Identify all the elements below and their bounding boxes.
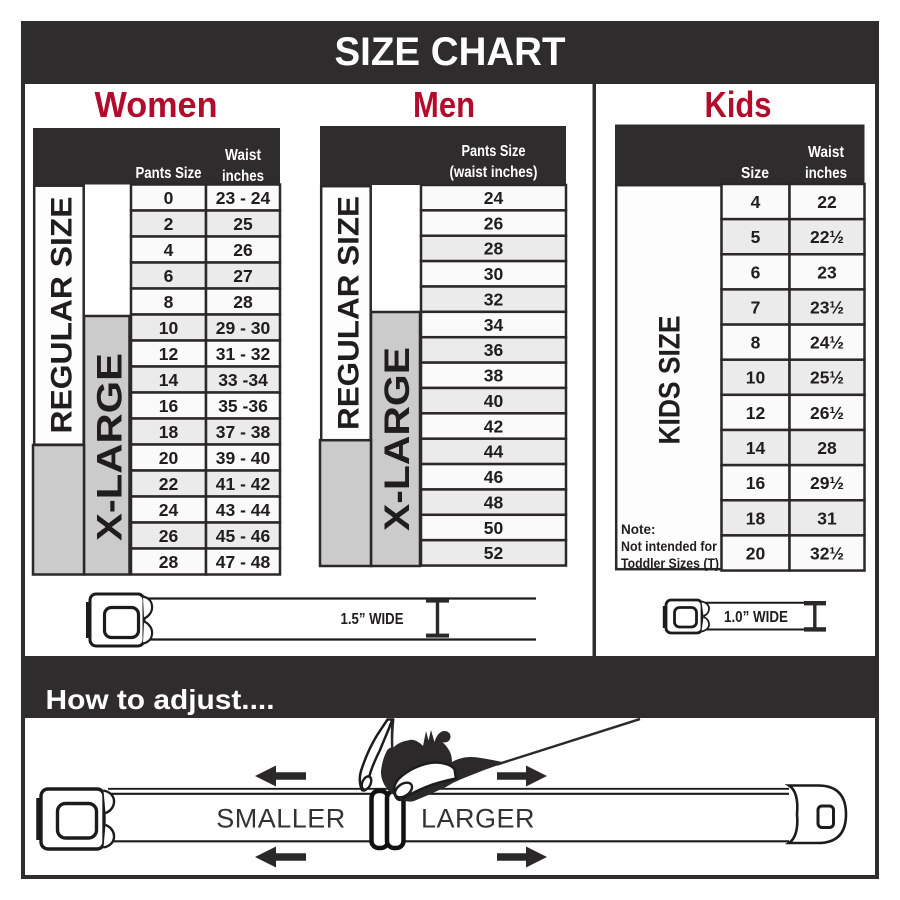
svg-text:28: 28 <box>484 239 504 259</box>
svg-text:39 - 40: 39 - 40 <box>216 448 271 468</box>
svg-text:REGULAR SIZE: REGULAR SIZE <box>333 196 366 430</box>
svg-text:4: 4 <box>164 240 174 260</box>
svg-text:28: 28 <box>233 292 253 312</box>
svg-text:35 -36: 35 -36 <box>218 396 268 416</box>
svg-text:20: 20 <box>746 543 766 563</box>
svg-text:How to adjust....: How to adjust.... <box>46 684 275 715</box>
svg-text:16: 16 <box>159 396 179 416</box>
svg-text:26: 26 <box>484 213 504 233</box>
svg-text:18: 18 <box>159 422 179 442</box>
svg-text:26: 26 <box>233 240 253 260</box>
svg-text:12: 12 <box>159 344 179 364</box>
svg-text:Not intended for: Not intended for <box>621 539 718 554</box>
svg-text:23: 23 <box>817 262 837 282</box>
svg-text:Pants Size: Pants Size <box>136 165 202 182</box>
svg-text:48: 48 <box>484 492 504 512</box>
svg-text:20: 20 <box>159 448 179 468</box>
svg-text:7: 7 <box>751 297 761 317</box>
svg-text:37 - 38: 37 - 38 <box>216 422 271 442</box>
svg-text:32: 32 <box>484 289 504 309</box>
svg-text:SMALLER: SMALLER <box>216 804 346 834</box>
svg-text:38: 38 <box>484 366 504 386</box>
svg-text:22: 22 <box>817 192 837 212</box>
svg-text:8: 8 <box>751 333 761 353</box>
svg-text:1.0” WIDE: 1.0” WIDE <box>724 609 788 626</box>
svg-text:52: 52 <box>484 543 504 563</box>
svg-text:28: 28 <box>159 552 179 572</box>
svg-text:Women: Women <box>95 84 218 125</box>
svg-text:28: 28 <box>817 438 837 458</box>
svg-text:X-LARGE: X-LARGE <box>378 347 417 531</box>
svg-text:inches: inches <box>805 165 847 182</box>
svg-text:14: 14 <box>159 370 179 390</box>
svg-text:KIDS SIZE: KIDS SIZE <box>654 316 687 445</box>
svg-text:10: 10 <box>746 368 766 388</box>
svg-text:Size: Size <box>741 165 769 182</box>
svg-text:26½: 26½ <box>810 403 844 423</box>
svg-text:Men: Men <box>413 84 475 125</box>
svg-text:26: 26 <box>159 526 179 546</box>
svg-text:Waist: Waist <box>808 144 845 161</box>
svg-text:18: 18 <box>746 508 766 528</box>
svg-text:Pants Size: Pants Size <box>462 143 526 160</box>
svg-text:Waist: Waist <box>225 147 262 164</box>
svg-text:X-LARGE: X-LARGE <box>91 353 130 541</box>
svg-text:34: 34 <box>484 315 504 335</box>
svg-text:6: 6 <box>164 266 174 286</box>
svg-text:43 - 44: 43 - 44 <box>216 500 271 520</box>
svg-text:REGULAR SIZE: REGULAR SIZE <box>46 197 79 434</box>
svg-text:29 - 30: 29 - 30 <box>216 318 271 338</box>
svg-text:1.5” WIDE: 1.5” WIDE <box>341 611 404 628</box>
svg-text:SIZE CHART: SIZE CHART <box>335 30 566 74</box>
svg-text:8: 8 <box>164 292 174 312</box>
svg-text:29½: 29½ <box>810 473 844 493</box>
svg-text:22½: 22½ <box>810 227 844 247</box>
svg-text:(waist inches): (waist inches) <box>450 164 538 181</box>
svg-text:27: 27 <box>233 266 252 286</box>
svg-text:24½: 24½ <box>810 333 844 353</box>
svg-text:4: 4 <box>751 192 761 212</box>
svg-text:0: 0 <box>164 188 174 208</box>
svg-text:42: 42 <box>484 416 504 436</box>
svg-text:24: 24 <box>484 188 504 208</box>
svg-text:45 - 46: 45 - 46 <box>216 526 271 546</box>
svg-text:10: 10 <box>159 318 179 338</box>
svg-text:40: 40 <box>484 391 504 411</box>
svg-text:Kids: Kids <box>705 84 772 125</box>
svg-text:33 -34: 33 -34 <box>218 370 268 390</box>
svg-text:41 - 42: 41 - 42 <box>216 474 271 494</box>
svg-text:44: 44 <box>484 442 504 462</box>
svg-text:inches: inches <box>222 168 264 185</box>
svg-text:46: 46 <box>484 467 504 487</box>
svg-text:24: 24 <box>159 500 179 520</box>
svg-text:25: 25 <box>233 214 253 234</box>
svg-text:6: 6 <box>751 262 761 282</box>
svg-text:14: 14 <box>746 438 766 458</box>
svg-text:12: 12 <box>746 403 766 423</box>
svg-text:23½: 23½ <box>810 297 844 317</box>
svg-text:50: 50 <box>484 518 504 538</box>
svg-text:31 - 32: 31 - 32 <box>216 344 271 364</box>
svg-text:25½: 25½ <box>810 368 844 388</box>
svg-text:5: 5 <box>751 227 761 247</box>
svg-text:Toddler Sizes (T): Toddler Sizes (T) <box>621 556 719 571</box>
svg-text:LARGER: LARGER <box>421 804 535 834</box>
svg-text:2: 2 <box>164 214 174 234</box>
svg-text:47 - 48: 47 - 48 <box>216 552 271 572</box>
svg-text:16: 16 <box>746 473 766 493</box>
svg-text:22: 22 <box>159 474 179 494</box>
svg-text:32½: 32½ <box>810 543 844 563</box>
svg-text:30: 30 <box>484 264 504 284</box>
svg-text:36: 36 <box>484 340 504 360</box>
svg-text:Note:: Note: <box>621 522 656 537</box>
svg-text:23 - 24: 23 - 24 <box>216 188 271 208</box>
svg-text:31: 31 <box>817 508 837 528</box>
